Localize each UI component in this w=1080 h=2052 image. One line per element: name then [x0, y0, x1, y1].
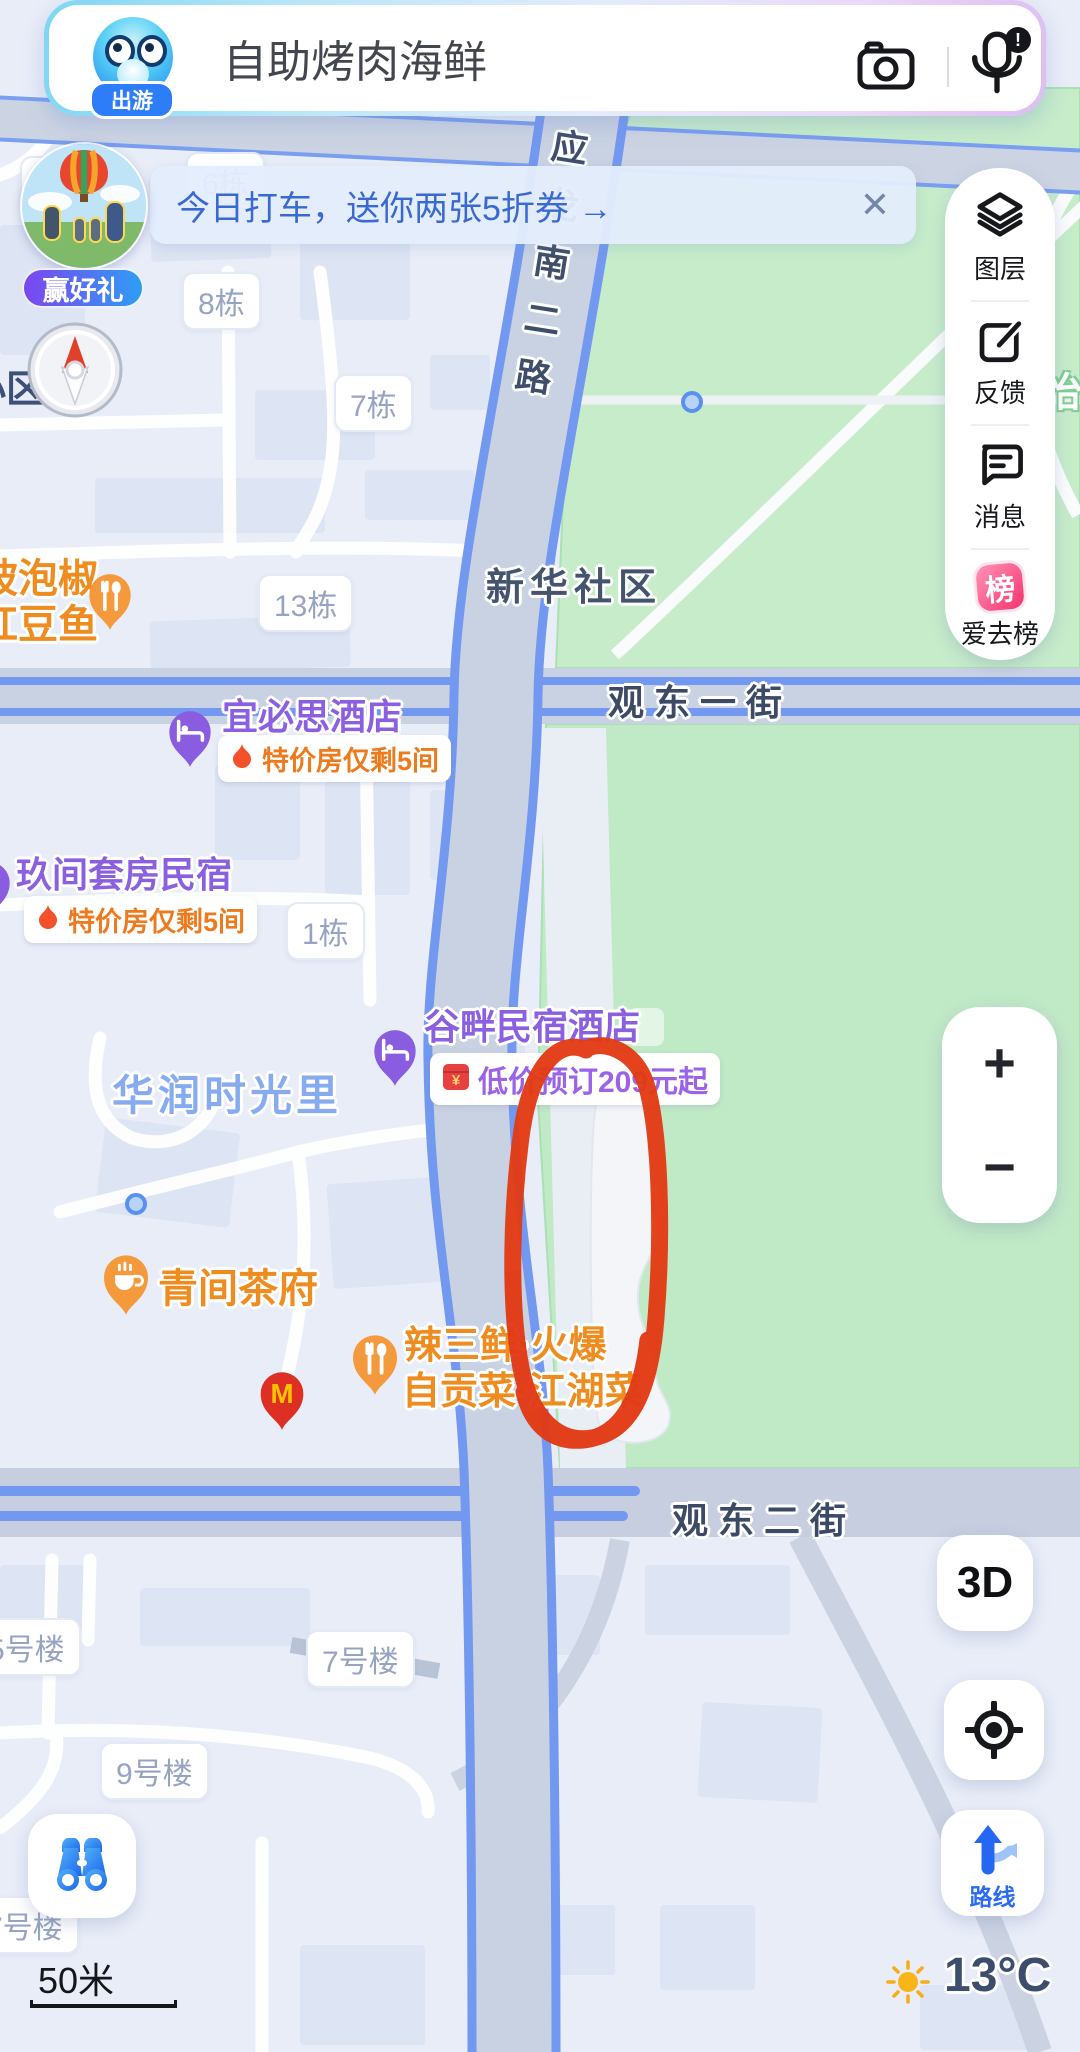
deal-badge-jiujian[interactable]: 特价房仅剩5间	[24, 896, 257, 943]
road-label-guandong2: 观东二街	[672, 1492, 856, 1544]
restaurant-pin-icon[interactable]	[348, 1331, 402, 1402]
svg-text:¥: ¥	[452, 1072, 461, 1089]
building-label: 5号楼	[0, 1618, 81, 1676]
map-app: 应 龙 南 二 路 观东一街 观东二街 新华社区 华润时光里 小区 怡 5栋 6…	[0, 0, 1080, 2052]
red-envelope-icon: ¥	[442, 1062, 470, 1097]
poi-name-qingjian[interactable]: 青间茶府	[158, 1256, 318, 1314]
divider	[971, 548, 1029, 550]
flame-icon	[230, 743, 254, 774]
right-toolbar: 图层 反馈 消息 榜 爱去榜	[945, 168, 1055, 660]
route-arrow-icon	[968, 1824, 1018, 1876]
activity-avatar[interactable]	[20, 142, 148, 270]
divider	[971, 300, 1029, 302]
zoom-out-button[interactable]: −	[983, 1139, 1016, 1195]
building-label: 7号楼	[306, 1630, 415, 1688]
toolbar-item-ranking[interactable]: 榜 爱去榜	[961, 564, 1039, 651]
route-button[interactable]: 路线	[941, 1810, 1044, 1916]
area-label-xinhua: 新华社区	[486, 556, 662, 611]
view-3d-button[interactable]: 3D	[937, 1535, 1033, 1631]
building-label: 13栋	[258, 574, 353, 632]
restaurant-pin-icon[interactable]	[85, 570, 135, 637]
area-label-huarun: 华润时光里	[112, 1062, 342, 1123]
zoom-in-button[interactable]: +	[983, 1035, 1016, 1091]
search-input[interactable]: 自助烤肉海鲜	[223, 26, 487, 90]
building-label: 1栋	[286, 902, 365, 960]
sun-icon	[884, 1958, 932, 2011]
mascot-badge: 出游	[89, 81, 175, 119]
poi-name-lasanxian-line2[interactable]: 自贡菜·江湖菜	[402, 1360, 643, 1415]
road-label-guandong1: 观东一街	[608, 674, 792, 726]
hotel-pin-icon[interactable]	[0, 858, 14, 925]
notification-badge: !	[1005, 27, 1031, 53]
deal-badge-gupan[interactable]: ¥ 低价预订209元起	[430, 1053, 720, 1105]
message-icon	[976, 475, 1024, 492]
toolbar-item-layers[interactable]: 图层	[974, 188, 1026, 286]
poi-name-jiujian[interactable]: 玖间套房民宿	[16, 846, 232, 898]
poi-name-paojiao-line2[interactable]: 红豆鱼	[0, 592, 98, 650]
building-label: 9号楼	[100, 1742, 209, 1800]
camera-icon[interactable]	[857, 39, 915, 91]
binoculars-icon	[50, 1838, 114, 1894]
toolbar-item-messages[interactable]: 消息	[974, 440, 1026, 534]
close-icon[interactable]: ✕	[860, 184, 890, 226]
promo-badge[interactable]: 赢好礼	[22, 268, 144, 308]
building-label: 7栋	[334, 374, 413, 432]
toolbar-item-feedback[interactable]: 反馈	[974, 316, 1026, 410]
promo-banner-text: 今日打车，送你两张5折券 →	[176, 181, 612, 230]
divider	[971, 424, 1029, 426]
explore-button[interactable]	[28, 1814, 136, 1918]
deal-badge-yibisi[interactable]: 特价房仅剩5间	[218, 735, 451, 782]
svg-text:M: M	[270, 1378, 293, 1409]
locate-button[interactable]	[944, 1680, 1044, 1780]
mcdonalds-pin-icon[interactable]: M	[256, 1368, 308, 1437]
teahouse-pin-icon[interactable]	[99, 1251, 153, 1322]
zoom-panel: + −	[942, 1007, 1057, 1223]
weather-temperature[interactable]: 13°C	[944, 1948, 1051, 2003]
hotel-pin-icon[interactable]	[165, 707, 215, 774]
compass-icon[interactable]	[27, 322, 123, 423]
layers-icon	[975, 227, 1025, 244]
map-dot	[681, 391, 703, 413]
building-label: 8栋	[182, 272, 261, 330]
map-dot	[125, 1193, 147, 1215]
flame-icon	[36, 904, 60, 935]
divider	[947, 47, 949, 87]
poi-name-yibisi[interactable]: 宜必思酒店	[222, 688, 402, 740]
map-scale-label: 50米	[38, 1952, 114, 2004]
promo-banner[interactable]: 今日打车，送你两张5折券 → ✕	[150, 166, 916, 244]
search-bar[interactable]: 出游 自助烤肉海鲜 !	[44, 0, 1046, 116]
edit-feedback-icon	[976, 351, 1024, 368]
poi-name-gupan[interactable]: 谷畔民宿酒店	[424, 998, 640, 1050]
map-scale-bar	[30, 2000, 177, 2008]
ranking-badge-icon: 榜	[975, 562, 1025, 612]
crosshair-icon	[965, 1701, 1023, 1759]
hotel-pin-icon[interactable]	[370, 1026, 420, 1093]
